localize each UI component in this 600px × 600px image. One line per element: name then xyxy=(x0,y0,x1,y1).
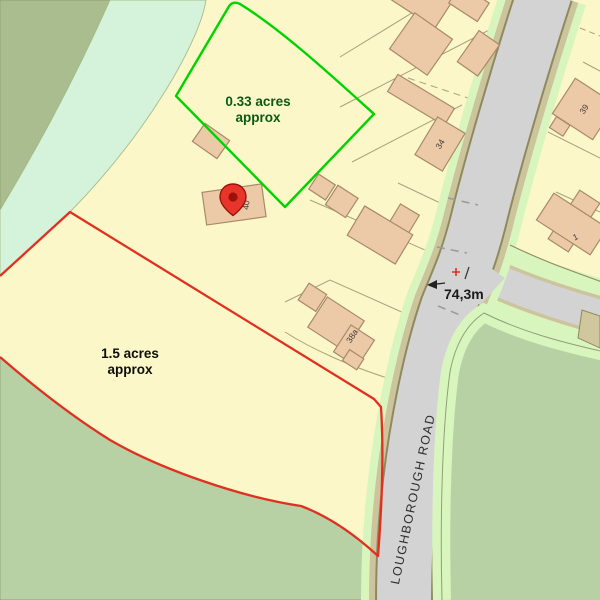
green-parcel-label-line1: 0.33 acres xyxy=(225,94,290,109)
red-parcel-label-line2: approx xyxy=(107,362,153,377)
spot-height-value: 74,3m xyxy=(444,286,484,302)
green-parcel-label-line2: approx xyxy=(235,110,281,125)
map-canvas[interactable]: 34 39 40 38a 1 74,3m 0.33 acres approx 1… xyxy=(0,0,600,600)
field-southeast xyxy=(441,313,600,600)
red-parcel-label-line1: 1.5 acres xyxy=(101,346,159,361)
